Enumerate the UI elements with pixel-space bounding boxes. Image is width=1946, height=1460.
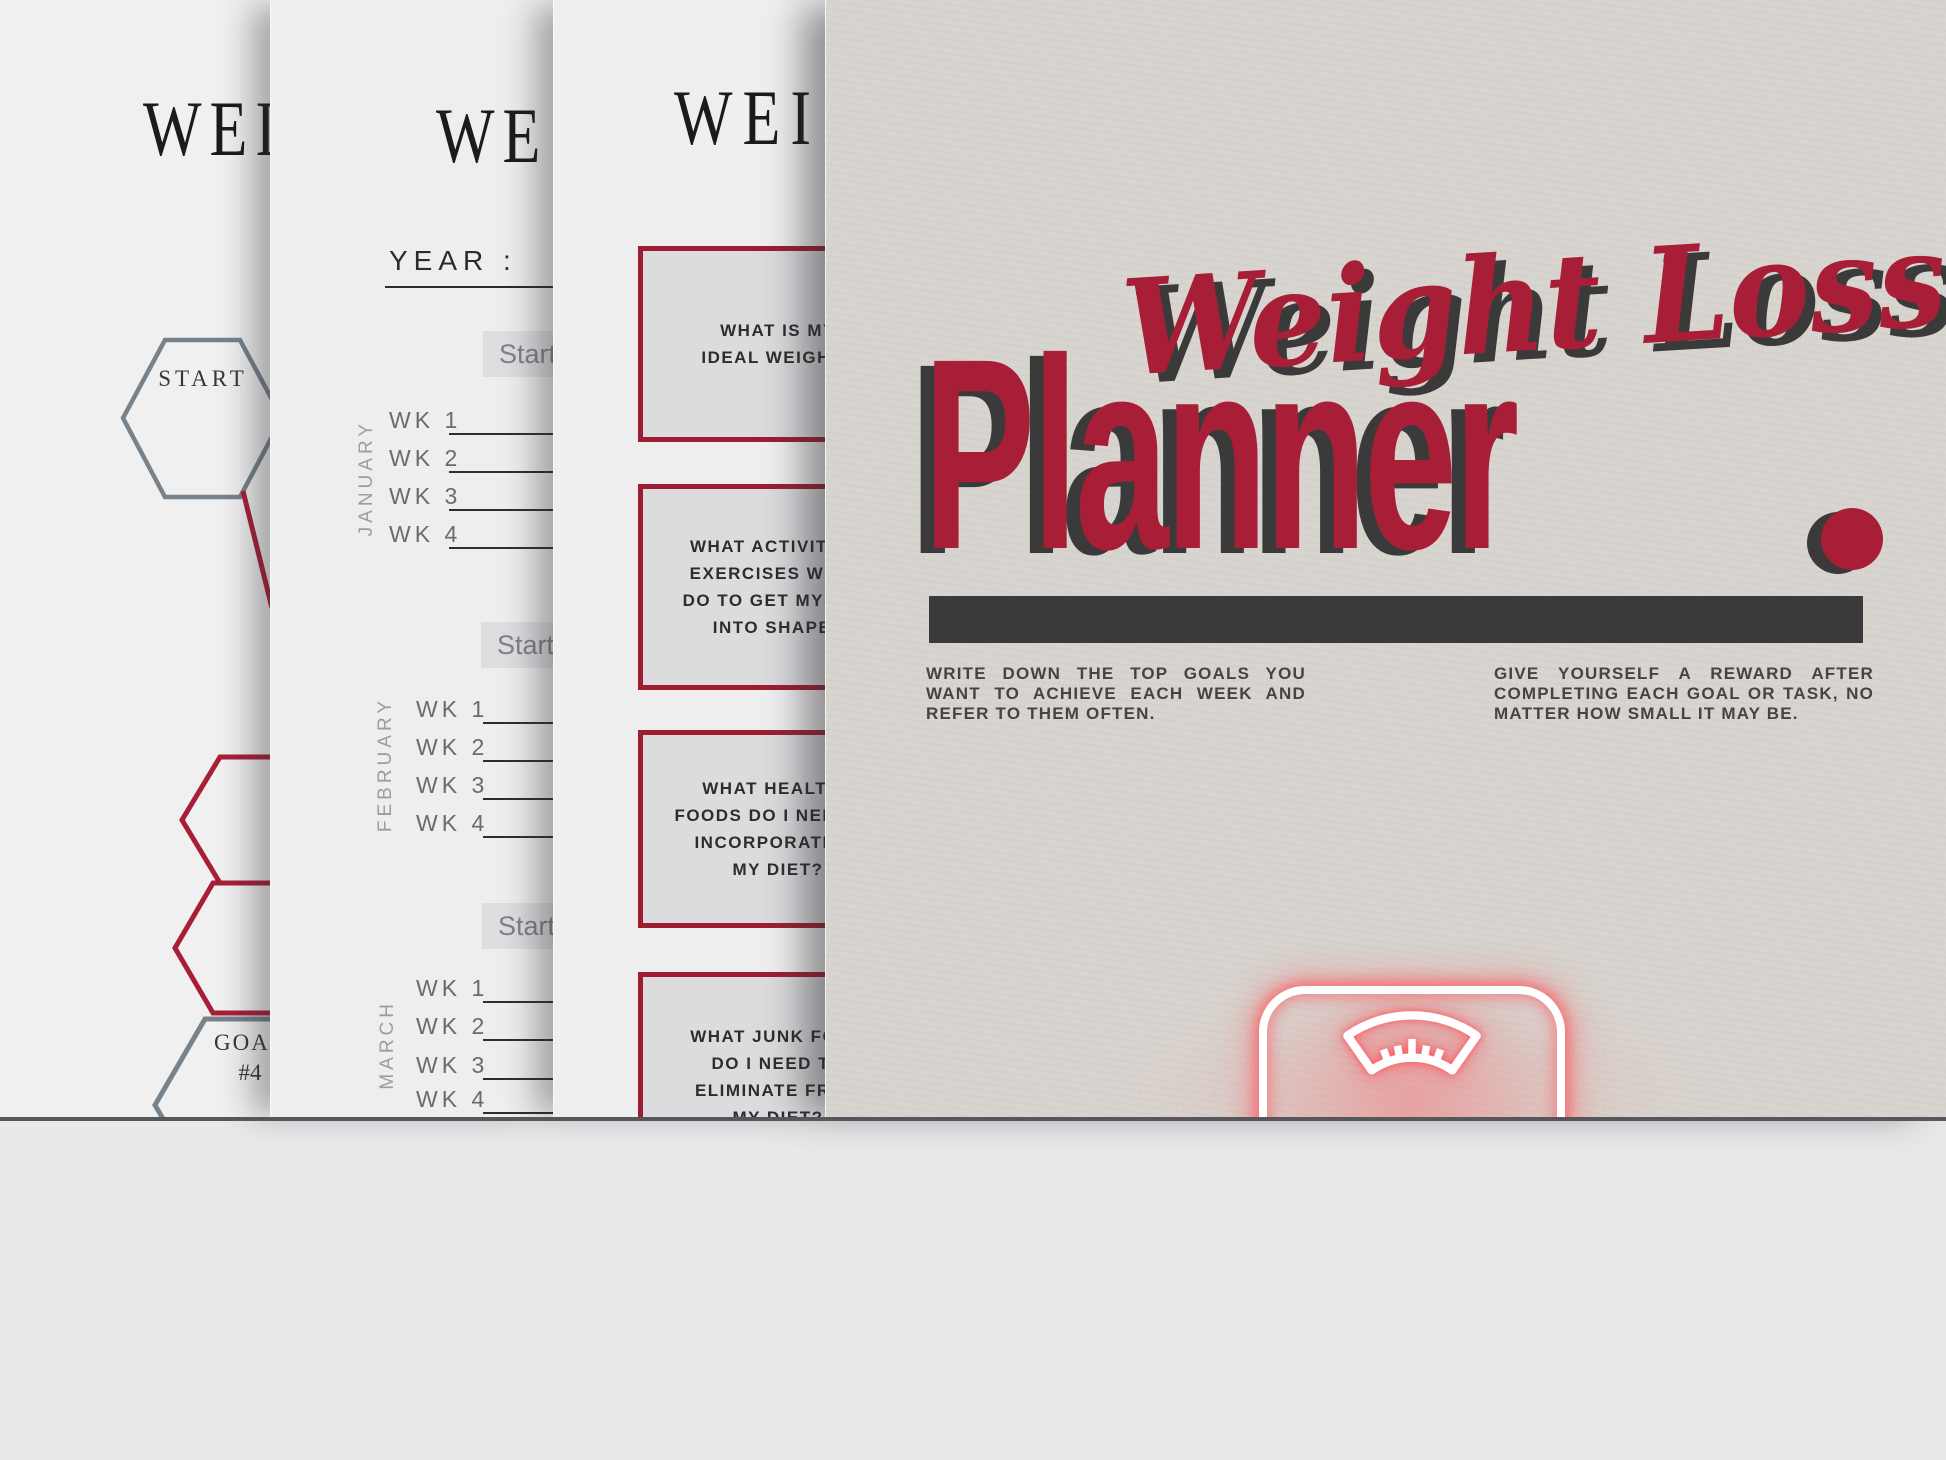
page-stack-bottom-edge (0, 1117, 1946, 1121)
bathroom-scale-icon (1259, 986, 1565, 1119)
week-fill-line (483, 798, 554, 800)
page-question-prompts: WEI WHAT IS MY IDEAL WEIGHT? WHAT ACTIVI… (553, 0, 828, 1119)
note-line: GIVE YOURSELF A REWARD AFTER (1494, 664, 1874, 684)
week-fill-line (483, 722, 554, 724)
week-fill-line (483, 1078, 554, 1080)
page-goal-tracker: WEI START GOAL #4 (0, 0, 270, 1119)
cover-page: Weight Loss Planner WRITE DOWN THE TOP G… (825, 0, 1946, 1119)
weight-loss-planner-mockup: WEI START GOAL #4 WE YEAR : Start JANUAR… (0, 0, 1946, 1460)
question-box: WHAT IS MY IDEAL WEIGHT? (638, 246, 828, 442)
scale-dial-icon (1337, 1006, 1487, 1081)
week-row-label: WK 2 (416, 1013, 488, 1040)
week-row-label: WK 1 (416, 696, 488, 723)
goal-hexagon-label: GOAL (185, 1030, 270, 1056)
week-fill-line (449, 471, 554, 473)
column-header-start-weight: Start (481, 622, 554, 668)
note-line: WRITE DOWN THE TOP GOALS YOU (926, 664, 1306, 684)
cover-note-right: GIVE YOURSELF A REWARD AFTER COMPLETING … (1494, 664, 1874, 724)
week-row-label: WK 1 (416, 975, 488, 1002)
week-row-label: WK 3 (389, 483, 461, 510)
week-row-label: WK 3 (416, 1052, 488, 1079)
week-fill-line (449, 509, 554, 511)
week-fill-line (449, 547, 554, 549)
question-box: WHAT ACTIVITIES/ EXERCISES WILL I DO TO … (638, 484, 828, 690)
week-row-label: WK 2 (389, 445, 461, 472)
week-row-label: WK 2 (416, 734, 488, 761)
cover-title-period-dot-icon (1821, 508, 1883, 570)
month-label-march: MARCH (377, 1000, 399, 1090)
week-fill-line (483, 760, 554, 762)
year-label: YEAR : (389, 245, 517, 277)
goal-hexagon-path-icon (0, 0, 270, 1119)
week-fill-line (483, 1039, 554, 1041)
page-weekly-log: WE YEAR : Start JANUARY WK 1 WK 2 WK 3 W… (270, 0, 554, 1119)
week-row-label: WK 3 (416, 772, 488, 799)
note-line: REFER TO THEM OFTEN. (926, 704, 1306, 724)
week-row-label: WK 4 (416, 1086, 488, 1113)
week-fill-line (483, 836, 554, 838)
week-row-label: WK 1 (389, 407, 461, 434)
note-line: COMPLETING EACH GOAL OR TASK, NO (1494, 684, 1874, 704)
week-fill-line (449, 433, 554, 435)
week-fill-line (483, 1112, 554, 1114)
question-box: WHAT JUNK FOOD DO I NEED TO ELIMINATE FR… (638, 972, 828, 1119)
cover-title-main: Planner (923, 318, 1516, 590)
page-title: WEI (674, 74, 821, 164)
week-row-label: WK 4 (389, 521, 461, 548)
year-fill-line (385, 286, 554, 288)
column-header-start-weight: Start (483, 331, 554, 377)
goal-hexagon-number: #4 (185, 1060, 270, 1086)
question-box: WHAT HEALTHY FOODS DO I NEED TO INCORPOR… (638, 730, 828, 928)
note-line: WANT TO ACHIEVE EACH WEEK AND (926, 684, 1306, 704)
week-row-label: WK 4 (416, 810, 488, 837)
month-label-january: JANUARY (356, 420, 378, 536)
week-fill-line (483, 1001, 554, 1003)
page-title: WE (436, 92, 548, 182)
note-line: MATTER HOW SMALL IT MAY BE. (1494, 704, 1874, 724)
month-label-february: FEBRUARY (375, 697, 397, 832)
start-hexagon-label: START (128, 366, 270, 392)
cover-note-left: WRITE DOWN THE TOP GOALS YOU WANT TO ACH… (926, 664, 1306, 724)
column-header-start-weight: Start (482, 903, 554, 949)
